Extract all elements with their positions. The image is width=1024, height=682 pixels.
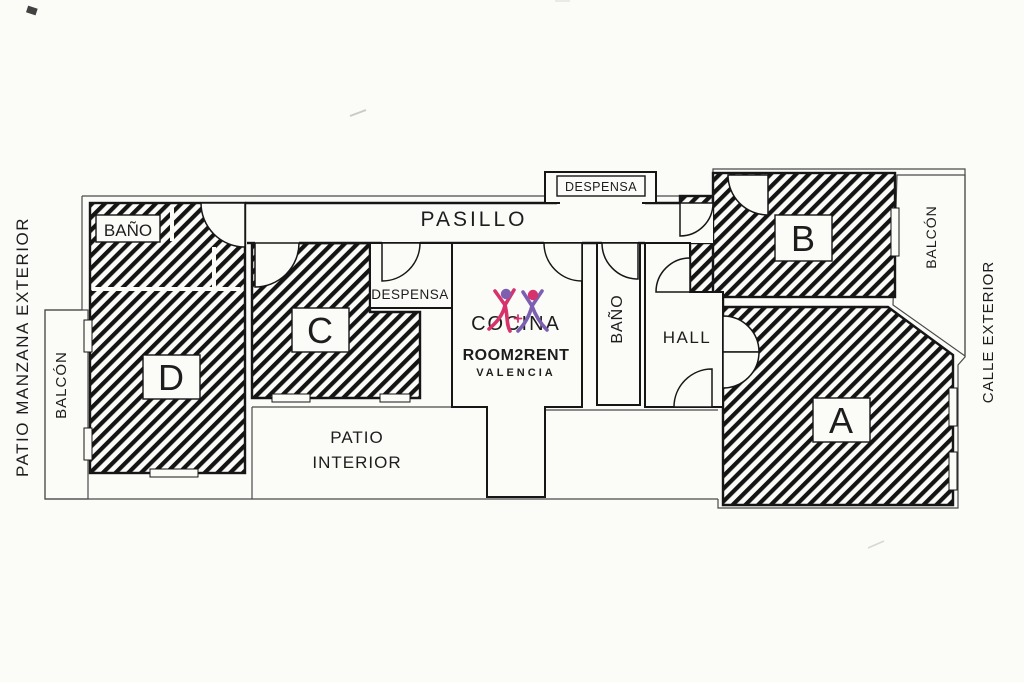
window-opening	[891, 208, 899, 256]
room-b-label: B	[791, 218, 815, 259]
pasillo-label: PASILLO	[421, 208, 528, 231]
window-opening	[949, 388, 957, 426]
scanned-floor-plan-page: D C B A PASILLO DESPENSA BAÑO DESPENSA B…	[0, 0, 1024, 682]
patio-interior-label-line2: INTERIOR	[312, 453, 401, 472]
window-opening	[150, 469, 198, 477]
balcony-left-label: BALCÓN	[53, 351, 70, 419]
room-c-label: C	[307, 310, 333, 351]
pantry-mid-label: DESPENSA	[371, 287, 449, 302]
room-d-label: D	[158, 357, 184, 398]
balcony-right-label: BALCÓN	[923, 205, 939, 269]
room-a-label: A	[829, 400, 853, 441]
window-opening	[84, 428, 92, 460]
room-d-and-bath-block	[90, 203, 245, 473]
bath-left-label: BAÑO	[104, 221, 152, 240]
window-opening	[272, 394, 310, 402]
logo-city-text: VALENCIA	[476, 367, 555, 379]
window-opening	[84, 320, 92, 352]
window-opening	[380, 394, 410, 402]
logo-brand-text: ROOM2RENT	[463, 347, 570, 364]
hall-label: HALL	[663, 328, 712, 347]
floor-plan: D C B A PASILLO DESPENSA BAÑO DESPENSA B…	[0, 0, 1024, 682]
window-opening	[949, 452, 957, 490]
patio-interior-label-line1: PATIO	[330, 428, 384, 447]
bath-mid-label: BAÑO	[606, 294, 626, 343]
pantry-top-label: DESPENSA	[565, 180, 637, 194]
calle-exterior-label: CALLE EXTERIOR	[980, 261, 997, 403]
patio-manzana-exterior-label: PATIO MANZANA EXTERIOR	[13, 217, 32, 477]
